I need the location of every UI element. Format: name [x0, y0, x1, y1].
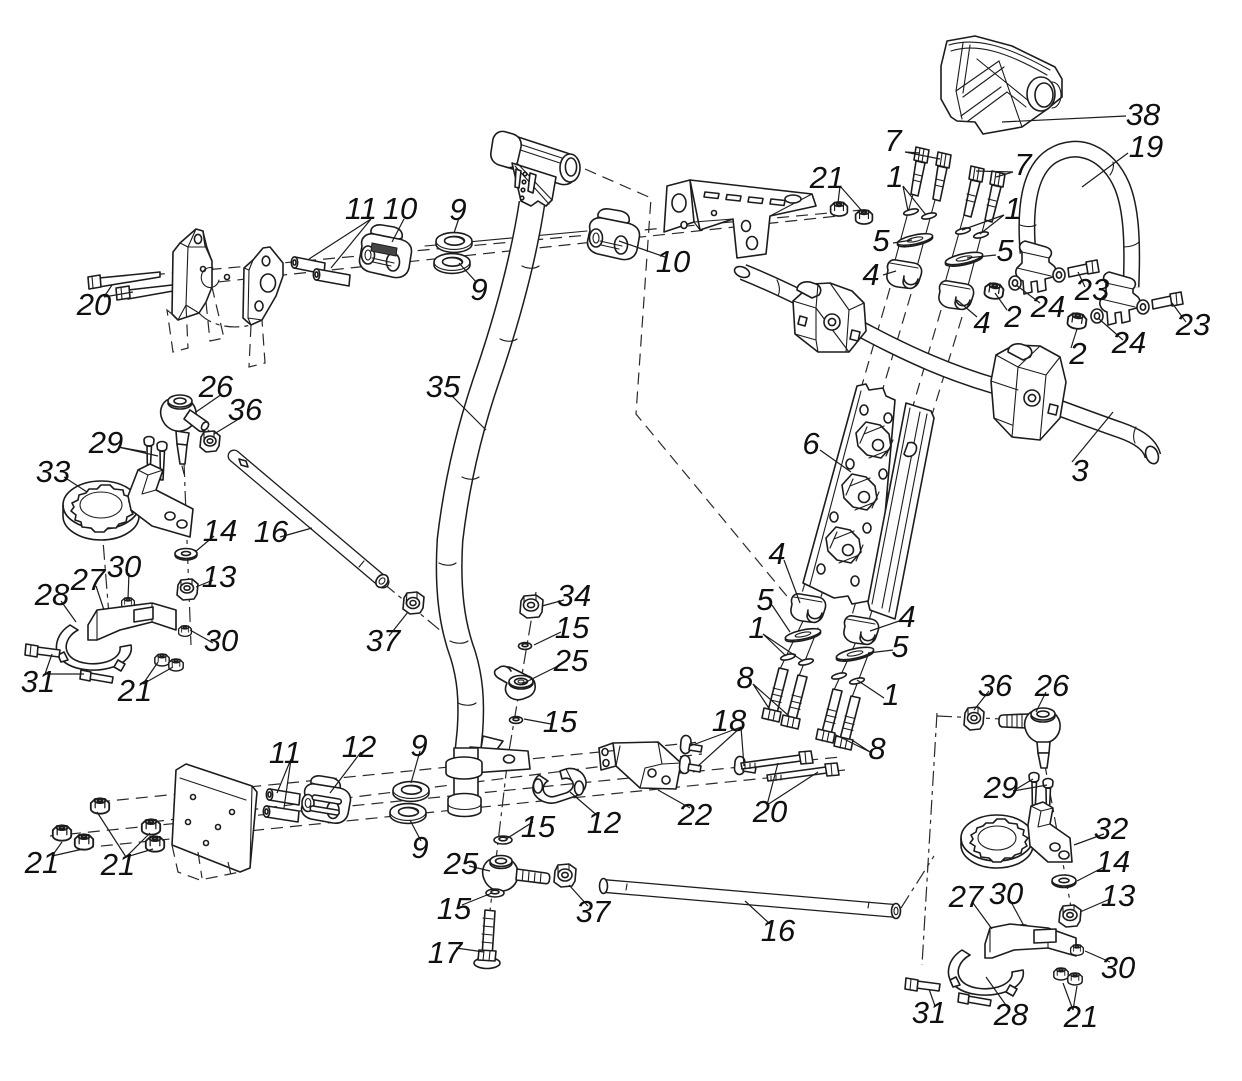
- svg-text:21: 21: [117, 673, 152, 708]
- svg-text:5: 5: [872, 223, 890, 258]
- svg-text:30: 30: [204, 623, 238, 658]
- svg-text:10: 10: [656, 244, 690, 279]
- svg-text:1: 1: [1004, 191, 1021, 226]
- svg-text:10: 10: [383, 191, 417, 226]
- svg-text:37: 37: [576, 894, 612, 929]
- svg-text:4: 4: [862, 257, 879, 292]
- svg-text:9: 9: [470, 272, 487, 307]
- svg-text:3: 3: [1071, 453, 1088, 488]
- svg-text:30: 30: [989, 876, 1023, 911]
- svg-text:17: 17: [428, 935, 464, 970]
- svg-text:1: 1: [748, 610, 765, 645]
- svg-text:13: 13: [202, 559, 236, 594]
- svg-text:4: 4: [768, 536, 785, 571]
- svg-text:22: 22: [677, 797, 712, 832]
- svg-text:12: 12: [342, 729, 376, 764]
- svg-text:11: 11: [345, 191, 377, 226]
- svg-text:5: 5: [891, 629, 909, 664]
- svg-text:27: 27: [948, 879, 985, 914]
- svg-text:5: 5: [996, 233, 1014, 268]
- svg-text:36: 36: [228, 392, 263, 427]
- svg-text:20: 20: [76, 287, 111, 322]
- svg-text:32: 32: [1094, 811, 1128, 846]
- svg-text:1: 1: [886, 159, 903, 194]
- svg-text:16: 16: [254, 514, 289, 549]
- svg-text:28: 28: [34, 577, 70, 612]
- svg-text:30: 30: [1101, 950, 1135, 985]
- svg-text:35: 35: [426, 369, 461, 404]
- svg-text:28: 28: [993, 997, 1029, 1032]
- svg-text:36: 36: [978, 668, 1013, 703]
- svg-text:37: 37: [366, 623, 402, 658]
- svg-text:2: 2: [1003, 299, 1021, 334]
- svg-text:9: 9: [411, 830, 428, 865]
- svg-text:15: 15: [521, 809, 556, 844]
- svg-text:9: 9: [410, 728, 427, 763]
- svg-text:25: 25: [443, 846, 479, 881]
- svg-text:23: 23: [1175, 307, 1210, 342]
- svg-text:13: 13: [1101, 878, 1135, 913]
- svg-text:12: 12: [587, 805, 621, 840]
- svg-text:21: 21: [1063, 999, 1098, 1034]
- svg-text:23: 23: [1074, 272, 1109, 307]
- svg-text:24: 24: [1030, 289, 1065, 324]
- svg-text:15: 15: [437, 891, 472, 926]
- svg-text:7: 7: [884, 123, 903, 158]
- svg-text:31: 31: [21, 664, 55, 699]
- svg-text:2: 2: [1068, 336, 1086, 371]
- svg-text:15: 15: [543, 704, 578, 739]
- svg-text:19: 19: [1129, 129, 1163, 164]
- svg-text:8: 8: [736, 660, 754, 695]
- svg-text:9: 9: [449, 192, 466, 227]
- svg-text:15: 15: [555, 610, 590, 645]
- svg-text:11: 11: [269, 735, 301, 770]
- svg-text:8: 8: [868, 731, 886, 766]
- svg-text:27: 27: [70, 562, 107, 597]
- svg-text:16: 16: [761, 913, 796, 948]
- svg-text:18: 18: [712, 703, 747, 738]
- svg-text:1: 1: [882, 677, 899, 712]
- svg-text:31: 31: [912, 995, 946, 1030]
- svg-text:21: 21: [809, 160, 844, 195]
- svg-text:29: 29: [983, 770, 1018, 805]
- svg-text:24: 24: [1111, 325, 1146, 360]
- svg-text:4: 4: [973, 305, 990, 340]
- svg-text:14: 14: [1096, 844, 1130, 879]
- svg-text:33: 33: [36, 454, 70, 489]
- svg-text:38: 38: [1126, 97, 1161, 132]
- svg-text:29: 29: [88, 425, 123, 460]
- svg-text:14: 14: [203, 513, 237, 548]
- svg-text:26: 26: [1034, 668, 1070, 703]
- svg-text:7: 7: [1014, 147, 1033, 182]
- svg-text:6: 6: [802, 426, 820, 461]
- svg-text:20: 20: [752, 794, 787, 829]
- svg-text:21: 21: [100, 847, 135, 882]
- svg-text:25: 25: [553, 643, 589, 678]
- svg-text:30: 30: [107, 549, 141, 584]
- svg-text:21: 21: [24, 845, 59, 880]
- svg-text:34: 34: [557, 578, 591, 613]
